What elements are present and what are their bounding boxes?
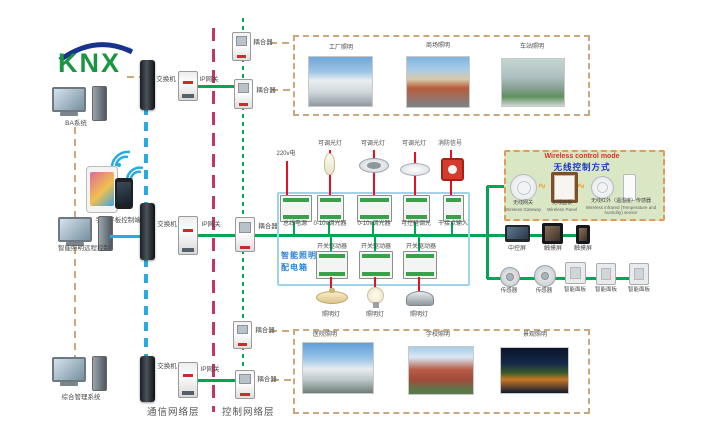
wireless-panel-icon — [551, 172, 578, 203]
comm-layer-label: 通信网络层 — [147, 404, 200, 418]
touchscreen-icon-1 — [542, 223, 563, 244]
candle-bulb-icon — [324, 153, 335, 175]
dimmer-module-icon-2 — [357, 195, 392, 222]
branch-vertical-line — [486, 186, 489, 279]
ceiling-lamp-icon — [316, 291, 348, 304]
gateway-label-3: IP网关 — [196, 366, 224, 373]
wireless-title-en: Wireless control mode — [508, 153, 656, 160]
switch-actuator-label-1: 开关驱动器 — [312, 244, 352, 251]
mall-lighting-photo — [406, 56, 470, 108]
wireless-sensor-round-icon — [591, 176, 614, 199]
dimmable-lamp-label-2: 可调光灯 — [355, 141, 391, 148]
school-lighting-photo — [408, 346, 474, 395]
gateway-coupler-line-top — [196, 85, 236, 88]
wireless-gateway-label-zh: 无线网关 — [504, 201, 542, 207]
coupler-icon-2 — [234, 79, 253, 109]
ctrl-layer-label: 控制网络层 — [222, 404, 275, 418]
mall-lighting-label: 商场照明 — [418, 43, 458, 50]
dimmable-lamp-label-1: 可调光灯 — [312, 141, 348, 148]
school-lighting-label: 学校照明 — [418, 332, 458, 339]
switch-label-3: 交换机 — [153, 363, 181, 370]
coupler-icon-1 — [232, 32, 251, 61]
wireless-gateway-label-en: Wireless Gateway — [501, 207, 545, 212]
smart-panel-label-3: 智能面板 — [625, 287, 653, 293]
dimmer-label-2: 0-10v调光器 — [352, 221, 396, 228]
wireless-panel-label-en: Wireless Panel — [544, 207, 580, 212]
management-system-label: 综合管理系统 — [36, 394, 126, 401]
sensor-label-2: 传感器 — [532, 288, 556, 294]
wireless-gateway-icon — [510, 174, 537, 201]
smart-panel-icon-1 — [565, 262, 586, 284]
touchscreen-icon-2 — [576, 225, 590, 244]
knx-lighting-system-diagram: KNX ® BA系统 手机平板控制端 智能照明远程控制 综合管理系统 — [0, 0, 715, 443]
dimmer-module-icon-1 — [317, 195, 344, 222]
hospital-lighting-label: 医院照明 — [305, 332, 345, 339]
switch-actuator-icon-1 — [316, 251, 348, 279]
bulb-lamp-icon — [367, 287, 384, 304]
dimmable-lamp-label-3: 可调光灯 — [396, 141, 432, 148]
distribution-box-title-2: 配电箱 — [281, 262, 308, 273]
ip-gateway-icon-3 — [178, 362, 198, 398]
wireless-sensor-rect-icon — [623, 174, 636, 201]
wireless-sensor-label-zh: 无线红外（温湿度）传感器 — [583, 199, 659, 205]
fire-signal-label: 消防信号 — [432, 141, 468, 148]
hospital-lighting-photo — [302, 342, 374, 394]
touchscreen-label-1: 触摸屏 — [539, 246, 567, 253]
smart-panel-label-1: 智能面板 — [561, 287, 589, 293]
power-220v-label: 220v电 — [271, 151, 301, 158]
ethernet-switch-icon-1 — [140, 60, 155, 110]
fire-alarm-icon — [441, 158, 464, 181]
knx-logo: KNX — [58, 48, 121, 79]
dry-contact-label: 干接点输入 — [434, 221, 472, 228]
landscape-lighting-label: 景观照明 — [515, 332, 555, 339]
bus-power-module-icon — [280, 195, 312, 222]
comm-network-dashed-line-1 — [144, 106, 148, 205]
smart-panel-label-2: 智能面板 — [592, 287, 620, 293]
switch-actuator-icon-2 — [359, 251, 393, 279]
power-feed-line — [286, 161, 288, 195]
landscape-lighting-photo — [500, 347, 569, 394]
knx-logo-reg-mark: ® — [127, 48, 132, 55]
distribution-box-title-1: 智能照明 — [281, 250, 317, 261]
switch-actuator-label-2: 开关驱动器 — [356, 244, 396, 251]
coupler-icon-4 — [233, 321, 252, 349]
management-computer-icon — [52, 356, 108, 392]
station-lighting-label: 车站照明 — [512, 44, 552, 51]
sensor-icon-1 — [500, 267, 520, 287]
coupler-label-1: 耦合器 — [250, 39, 276, 46]
gateway-label-2: IP网关 — [197, 221, 225, 228]
coupler-label-2: 耦合器 — [253, 87, 279, 94]
gateway-label-1: IP网关 — [195, 76, 223, 83]
factory-lighting-label: 工厂照明 — [321, 45, 361, 52]
panel-light-icon — [400, 163, 430, 176]
wireless-panel-label-zh: 无线面板 — [547, 201, 577, 207]
coupler-icon-5 — [235, 370, 255, 399]
ba-system-computer-icon — [52, 86, 108, 122]
central-screen-icon — [505, 225, 530, 242]
dimmer-label-1: 0-10v调光器 — [308, 221, 352, 228]
downlight-icon — [359, 158, 389, 173]
switch-actuator-icon-3 — [403, 251, 437, 279]
central-screen-label: 中控屏 — [502, 246, 532, 253]
sensor-icon-2 — [534, 265, 556, 287]
comm-network-dashed-line-2 — [144, 258, 148, 358]
gateway-coupler-line-bottom — [196, 379, 238, 382]
wireless-title-zh: 无线控制方式 — [508, 161, 656, 173]
smart-panel-icon-3 — [629, 263, 649, 285]
scr-dimmer-label: 可控硅调光 — [398, 221, 434, 228]
layer-divider-line — [212, 28, 215, 412]
lamp-label-1: 照明灯 — [317, 312, 345, 319]
scr-dimmer-module-icon — [403, 195, 430, 222]
coupler-icon-3 — [235, 217, 255, 252]
gateway-coupler-line-mid — [196, 234, 238, 237]
switch-label-2: 交换机 — [153, 221, 181, 228]
touchscreen-label-2: 触摸屏 — [569, 246, 597, 253]
factory-lighting-photo — [308, 56, 373, 107]
dome-lamp-icon — [406, 291, 434, 306]
dry-contact-module-icon — [443, 195, 464, 222]
management-dashed-connector — [127, 76, 141, 78]
remote-control-label: 智能照明远程控制 — [30, 245, 138, 252]
smart-panel-icon-2 — [596, 263, 616, 285]
ba-system-label: BA系统 — [38, 120, 114, 127]
lamp-label-2: 照明灯 — [361, 312, 389, 319]
phone-icon — [115, 178, 133, 209]
sensor-label-1: 传感器 — [497, 288, 521, 294]
switch-actuator-label-3: 开关驱动器 — [401, 244, 441, 251]
ip-gateway-icon-2 — [178, 216, 198, 255]
coupler-label-4: 耦合器 — [252, 327, 278, 334]
coupler-label-5: 耦合器 — [254, 376, 280, 383]
lamp-label-3: 照明灯 — [405, 312, 433, 319]
ethernet-switch-icon-2 — [140, 203, 155, 260]
station-lighting-photo — [501, 58, 565, 107]
tablet-icon — [86, 166, 118, 213]
switch-label-1: 交换机 — [152, 76, 180, 83]
wireless-sensor-label-en: Wireless infrared (Temperature and humid… — [581, 205, 661, 215]
